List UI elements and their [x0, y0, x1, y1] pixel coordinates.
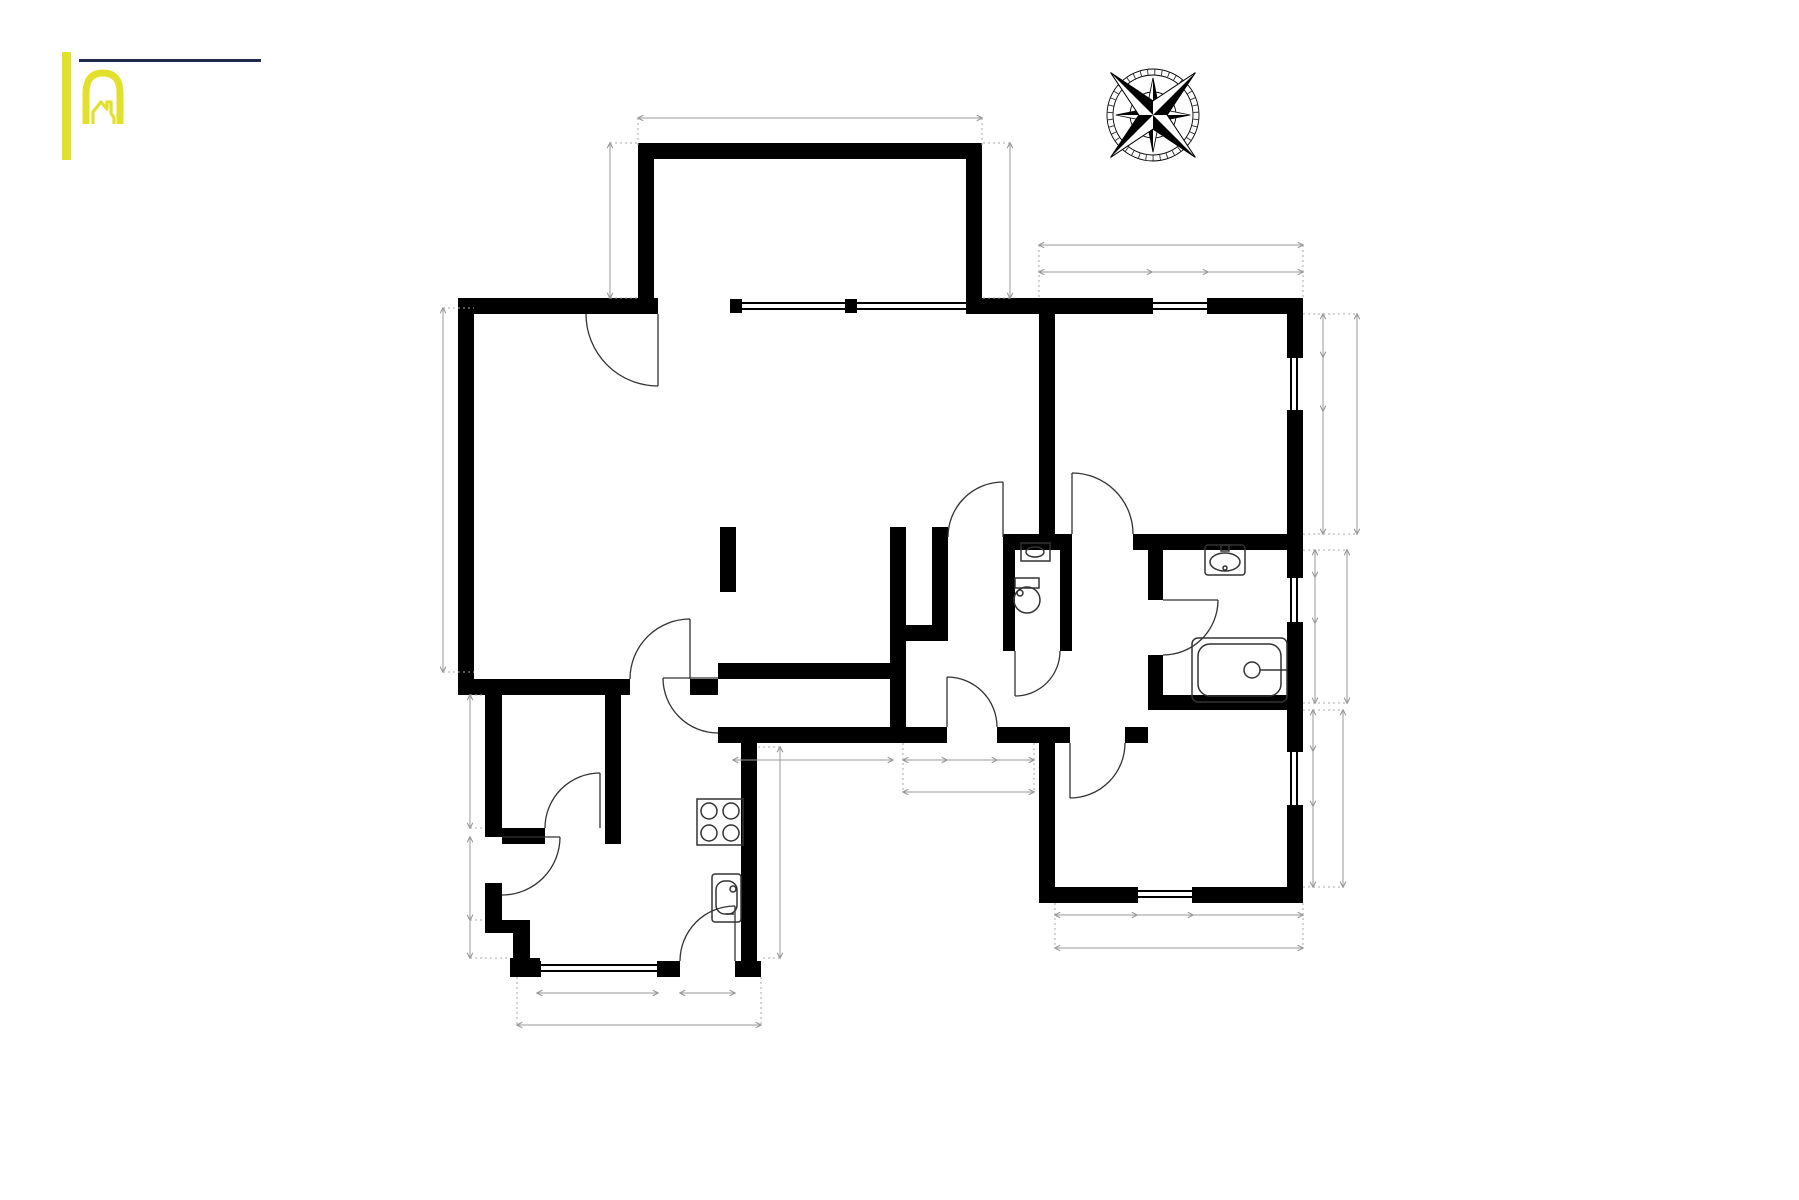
floorplan-page [0, 0, 1799, 1200]
bathtub-icon [1192, 638, 1287, 702]
walls [458, 143, 1303, 977]
stove-icon [697, 799, 743, 845]
doors [502, 314, 1218, 961]
toilet-icon [1014, 578, 1040, 613]
kitchen-sink-icon [712, 874, 741, 922]
floorplan-drawing [0, 0, 1799, 1200]
